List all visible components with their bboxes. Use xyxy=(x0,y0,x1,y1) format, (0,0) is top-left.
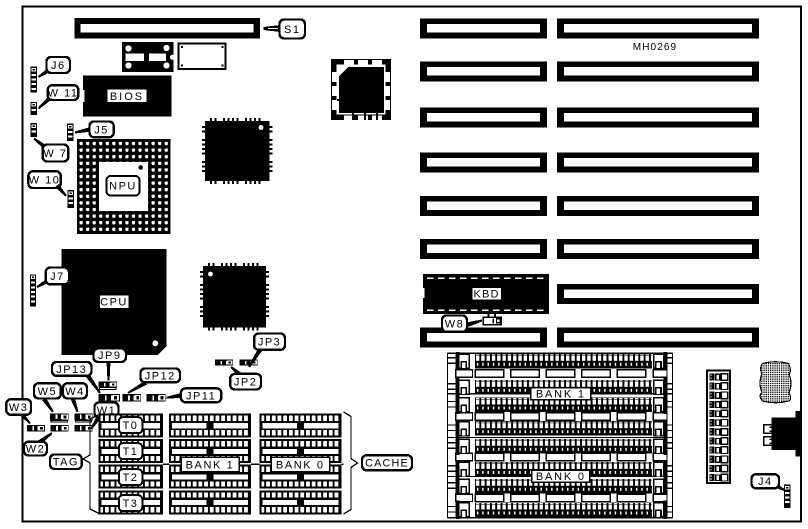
svg-text:W8: W8 xyxy=(445,319,465,331)
svg-text:BANK 1: BANK 1 xyxy=(186,459,235,471)
svg-text:W 7: W 7 xyxy=(43,148,67,160)
svg-text:T2: T2 xyxy=(123,472,139,484)
svg-text:J5: J5 xyxy=(94,124,109,136)
svg-text:JP12: JP12 xyxy=(145,370,176,382)
svg-text:W4: W4 xyxy=(65,386,85,398)
svg-text:T3: T3 xyxy=(123,498,139,510)
svg-text:JP9: JP9 xyxy=(98,350,121,362)
svg-text:W 10: W 10 xyxy=(29,175,61,187)
svg-text:W5: W5 xyxy=(38,386,58,398)
svg-text:NPU: NPU xyxy=(109,181,137,193)
svg-text:JP2: JP2 xyxy=(234,377,257,389)
svg-text:J4: J4 xyxy=(758,476,773,488)
svg-text:BIOS: BIOS xyxy=(110,91,144,103)
svg-text:MH0269: MH0269 xyxy=(633,42,677,53)
svg-text:KBD: KBD xyxy=(473,288,499,300)
svg-text:BANK 0: BANK 0 xyxy=(276,459,325,471)
svg-text:J7: J7 xyxy=(50,271,65,283)
svg-text:W 11: W 11 xyxy=(48,88,79,100)
svg-text:JP13: JP13 xyxy=(56,364,87,376)
svg-text:TAG: TAG xyxy=(53,457,79,469)
svg-text:T1: T1 xyxy=(123,446,139,458)
svg-text:S1: S1 xyxy=(284,24,300,36)
svg-text:JP3: JP3 xyxy=(258,337,281,349)
svg-text:T0: T0 xyxy=(123,420,139,432)
svg-text:W3: W3 xyxy=(9,402,29,414)
svg-text:BANK 1: BANK 1 xyxy=(536,388,586,400)
svg-text:J6: J6 xyxy=(51,60,66,72)
svg-text:JP11: JP11 xyxy=(186,390,216,402)
svg-text:BANK 0: BANK 0 xyxy=(536,471,586,483)
svg-text:CACHE: CACHE xyxy=(365,458,409,470)
svg-text:W2: W2 xyxy=(26,444,46,456)
svg-text:CPU: CPU xyxy=(100,296,128,308)
